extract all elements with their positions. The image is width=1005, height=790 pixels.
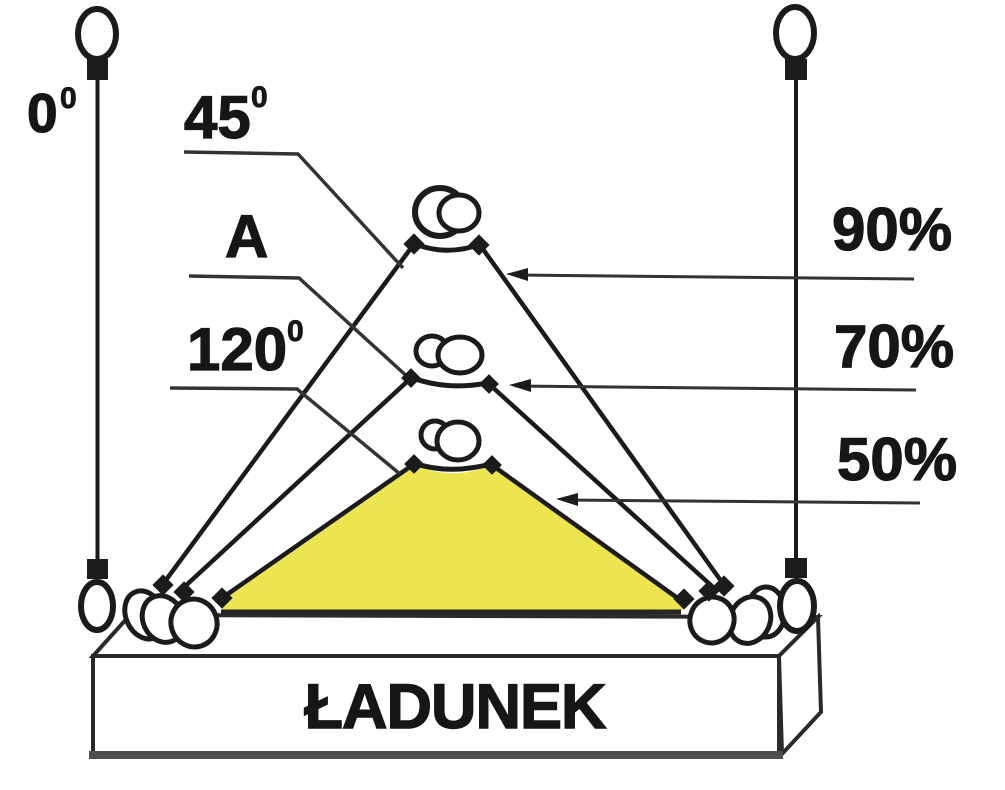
svg-text:45: 45	[184, 84, 251, 151]
svg-text:120: 120	[187, 316, 287, 383]
svg-text:0: 0	[251, 81, 268, 114]
svg-text:A: A	[225, 203, 268, 270]
svg-text:90%: 90%	[832, 196, 952, 263]
svg-text:0: 0	[287, 315, 304, 348]
svg-text:0: 0	[27, 82, 58, 144]
svg-text:70%: 70%	[834, 313, 954, 380]
svg-text:50%: 50%	[837, 426, 957, 493]
svg-text:ŁADUNEK: ŁADUNEK	[305, 672, 606, 742]
svg-text:0: 0	[60, 82, 77, 115]
